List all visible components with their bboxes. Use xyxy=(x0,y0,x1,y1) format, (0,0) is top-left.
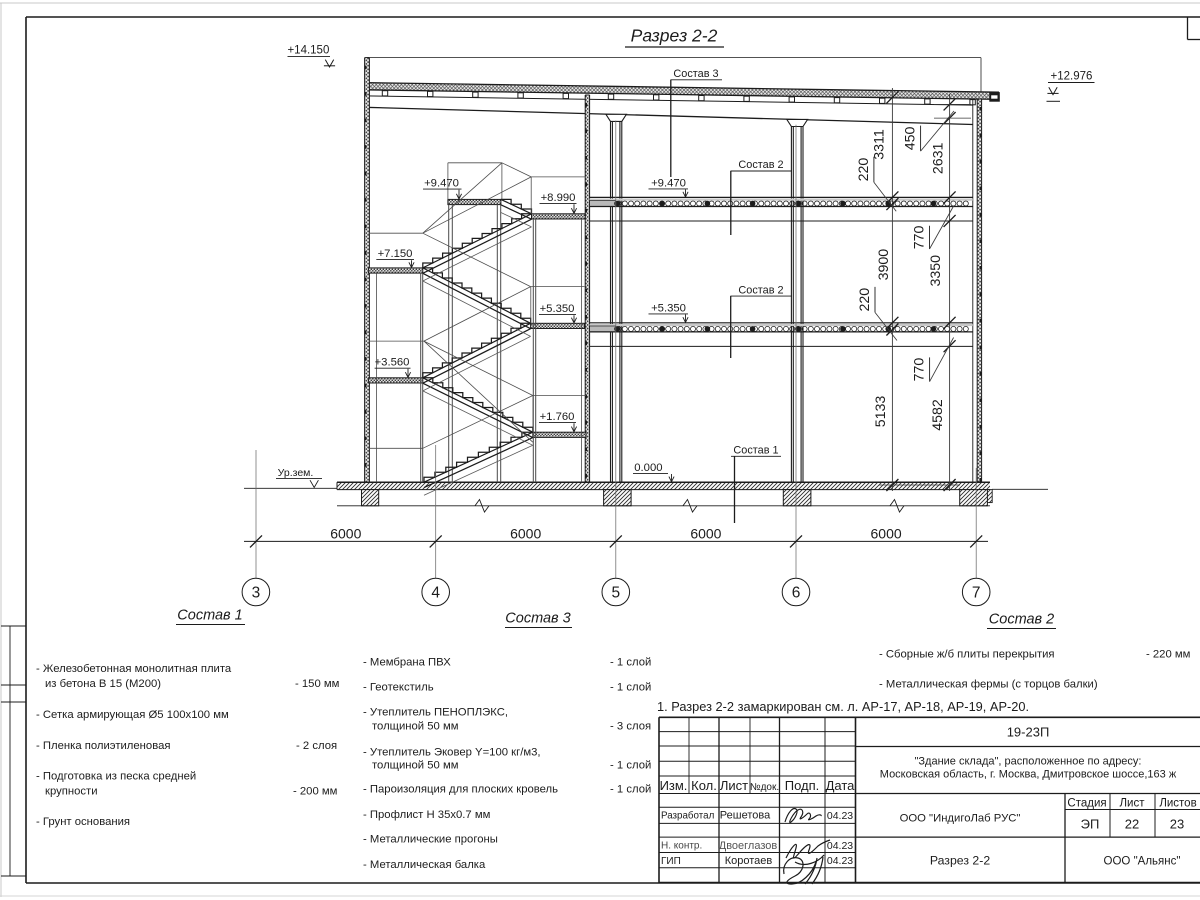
svg-text:Стадия: Стадия xyxy=(1067,798,1106,810)
svg-text:+5.350: +5.350 xyxy=(651,302,686,314)
svg-text:6000: 6000 xyxy=(330,526,361,542)
svg-text:220: 220 xyxy=(856,158,872,182)
svg-text:450: 450 xyxy=(903,126,919,150)
svg-text:- Металлические прогоны: - Металлические прогоны xyxy=(363,834,498,846)
svg-text:- 3 слоя: - 3 слоя xyxy=(610,721,651,733)
svg-text:Московская область, г. Москва,: Московская область, г. Москва, Дмитровск… xyxy=(880,769,1177,781)
svg-text:Состав 2: Состав 2 xyxy=(738,159,783,171)
svg-text:22: 22 xyxy=(1125,817,1139,832)
svg-text:- 2 слоя: - 2 слоя xyxy=(296,740,337,752)
svg-text:ООО "ИндигоЛаб РУС": ООО "ИндигоЛаб РУС" xyxy=(900,813,1021,825)
svg-text:2631: 2631 xyxy=(930,143,946,175)
svg-text:19-23П: 19-23П xyxy=(1007,725,1050,740)
svg-text:ЭП: ЭП xyxy=(1081,817,1100,832)
svg-text:6000: 6000 xyxy=(871,526,902,542)
svg-text:Разрез 2-2: Разрез 2-2 xyxy=(631,26,718,46)
svg-text:Состав 1: Состав 1 xyxy=(177,608,242,624)
svg-text:3350: 3350 xyxy=(928,255,944,287)
svg-text:Состав 2: Состав 2 xyxy=(738,284,783,296)
svg-text:3311: 3311 xyxy=(871,129,887,160)
svg-text:- Геотекстиль: - Геотекстиль xyxy=(363,682,434,694)
svg-text:770: 770 xyxy=(911,225,927,249)
svg-text:7: 7 xyxy=(972,585,981,602)
svg-text:Дата: Дата xyxy=(826,778,856,793)
svg-text:"Здание склада", расположенное: "Здание склада", расположенное по адресу… xyxy=(915,756,1142,768)
svg-text:Состав 1: Состав 1 xyxy=(733,445,778,457)
svg-text:+12.976: +12.976 xyxy=(1051,71,1093,83)
svg-text:Разрез 2-2: Разрез 2-2 xyxy=(930,854,991,868)
svg-text:5133: 5133 xyxy=(873,396,889,428)
svg-text:Кол.: Кол. xyxy=(691,778,717,793)
svg-text:Лист: Лист xyxy=(1120,798,1146,810)
svg-text:5: 5 xyxy=(611,585,620,602)
svg-text:из бетона В 15 (М200): из бетона В 15 (М200) xyxy=(45,678,161,690)
svg-text:Ур.зем.: Ур.зем. xyxy=(278,467,314,479)
svg-text:Лист: Лист xyxy=(720,778,748,793)
svg-text:220: 220 xyxy=(857,288,873,312)
svg-text:- Утеплитель Эковер Y=100 кг/м: - Утеплитель Эковер Y=100 кг/м3, xyxy=(363,747,541,759)
svg-text:+1.760: +1.760 xyxy=(540,411,575,423)
svg-text:770: 770 xyxy=(912,358,928,382)
svg-text:04.23: 04.23 xyxy=(827,855,853,867)
svg-text:4: 4 xyxy=(431,585,440,602)
svg-text:Коротаев: Коротаев xyxy=(725,855,773,867)
svg-text:+9.470: +9.470 xyxy=(424,178,459,190)
svg-text:04.23: 04.23 xyxy=(827,840,853,852)
svg-text:толщиной 50 мм: толщиной 50 мм xyxy=(372,760,459,772)
svg-text:3900: 3900 xyxy=(876,249,892,281)
svg-text:3: 3 xyxy=(252,585,261,602)
svg-text:Состав 2: Состав 2 xyxy=(989,612,1054,628)
svg-text:Состав 3: Состав 3 xyxy=(673,68,718,80)
svg-text:- Металлическая балка: - Металлическая балка xyxy=(363,859,486,871)
svg-text:толщиной 50 мм: толщиной 50 мм xyxy=(372,721,459,733)
svg-text:Н. контр.: Н. контр. xyxy=(661,841,702,852)
svg-text:- Утеплитель ПЕНОПЛЭКС,: - Утеплитель ПЕНОПЛЭКС, xyxy=(363,707,508,719)
svg-text:- 1 слой: - 1 слой xyxy=(610,784,651,796)
svg-text:6000: 6000 xyxy=(510,526,541,542)
svg-text:+9.470: +9.470 xyxy=(651,177,686,189)
svg-text:4582: 4582 xyxy=(930,399,946,431)
svg-text:Двоеглазов: Двоеглазов xyxy=(719,840,778,852)
svg-text:- Железобетонная монолитная п: - Железобетонная монолитная плита xyxy=(36,663,232,675)
svg-text:- Металлическая фермы (с торцо: - Металлическая фермы (с торцов балки) xyxy=(879,679,1098,691)
svg-text:- Сборные ж/б плиты перекрытия: - Сборные ж/б плиты перекрытия xyxy=(879,649,1055,661)
svg-text:Решетова: Решетова xyxy=(720,810,771,822)
svg-text:+14.150: +14.150 xyxy=(287,45,329,57)
svg-text:- 220 мм: - 220 мм xyxy=(1146,649,1190,661)
svg-text:- Мембрана ПВХ: - Мембрана ПВХ xyxy=(363,657,451,669)
svg-text:- Профлист Н 35х0.7 мм: - Профлист Н 35х0.7 мм xyxy=(363,809,490,821)
svg-text:1. Разрез 2-2 замаркирован см.: 1. Разрез 2-2 замаркирован см. л. АР-17,… xyxy=(657,699,1029,714)
svg-text:6: 6 xyxy=(792,585,801,602)
svg-text:- Подготовка из песка средней: - Подготовка из песка средней xyxy=(36,771,196,783)
svg-text:Состав 3: Состав 3 xyxy=(505,611,570,627)
svg-text:- Пленка полиэтиленовая: - Пленка полиэтиленовая xyxy=(36,740,170,752)
svg-text:6000: 6000 xyxy=(690,526,721,542)
svg-text:Листов: Листов xyxy=(1159,798,1196,810)
svg-text:крупности: крупности xyxy=(45,786,98,798)
svg-text:04.23: 04.23 xyxy=(827,810,853,822)
svg-text:- 1 слой: - 1 слой xyxy=(610,760,651,772)
svg-text:ГИП: ГИП xyxy=(661,856,681,867)
svg-text:+8.990: +8.990 xyxy=(541,192,576,204)
svg-text:23: 23 xyxy=(1170,817,1184,832)
svg-text:- 1 слой: - 1 слой xyxy=(610,657,651,669)
svg-text:- 200 мм: - 200 мм xyxy=(293,786,337,798)
svg-text:- 1 слой: - 1 слой xyxy=(610,682,651,694)
svg-text:Изм.: Изм. xyxy=(660,778,688,793)
svg-text:ООО "Альянс": ООО "Альянс" xyxy=(1104,856,1181,868)
svg-text:№док.: №док. xyxy=(750,782,779,793)
svg-text:Разработал: Разработал xyxy=(661,811,715,822)
svg-text:+5.350: +5.350 xyxy=(540,303,575,315)
svg-text:- Сетка армирующая Ø5 100х100: - Сетка армирующая Ø5 100х100 мм xyxy=(36,709,229,721)
svg-text:- 150 мм: - 150 мм xyxy=(295,678,339,690)
svg-text:0.000: 0.000 xyxy=(634,462,662,474)
svg-text:+7.150: +7.150 xyxy=(378,248,413,260)
svg-text:+3.560: +3.560 xyxy=(375,357,410,369)
svg-text:Подп.: Подп. xyxy=(785,778,820,793)
svg-text:- Грунт основания: - Грунт основания xyxy=(36,816,130,828)
svg-text:- Пароизоляция для плоских кро: - Пароизоляция для плоских кровель xyxy=(363,784,558,796)
